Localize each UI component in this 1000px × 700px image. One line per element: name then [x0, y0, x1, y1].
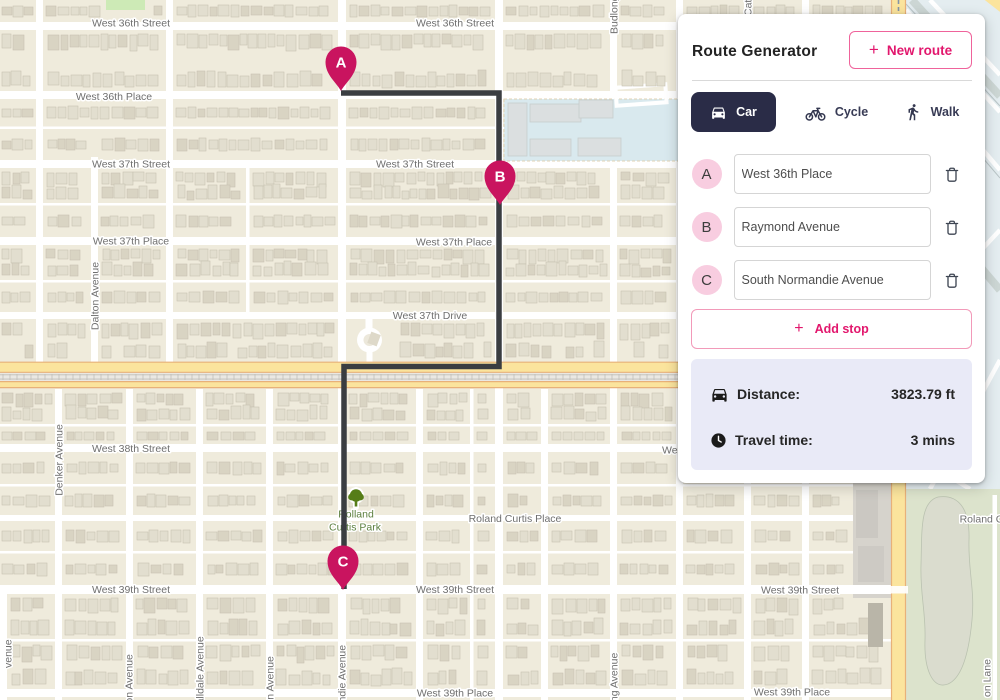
svg-text:on Lane: on Lane: [982, 659, 994, 697]
svg-text:West 37th Place: West 37th Place: [416, 237, 492, 249]
svg-text:Roland Curtis Place: Roland Curtis Place: [469, 513, 562, 525]
svg-text:Roland Curtis Place: Roland Curtis Place: [960, 514, 1000, 526]
svg-text:A: A: [336, 55, 347, 72]
svg-text:B: B: [495, 169, 506, 186]
svg-text:West 36th Place: West 36th Place: [76, 91, 152, 103]
svg-text:West 39th Street: West 39th Street: [92, 584, 170, 596]
svg-text:West 36th Street: West 36th Street: [416, 18, 494, 30]
svg-text:Budlong Avenue: Budlong Avenue: [609, 653, 621, 700]
svg-text:West 38th Street: West 38th Street: [92, 443, 170, 455]
svg-text:West 39th Place: West 39th Place: [754, 687, 830, 699]
svg-text:Brighton Avenue: Brighton Avenue: [124, 654, 136, 700]
svg-text:West 37th Drive: West 37th Drive: [393, 310, 468, 322]
svg-text:West 39th Street: West 39th Street: [416, 584, 494, 596]
svg-text:West 37th Street: West 37th Street: [92, 159, 170, 171]
svg-text:West 39th Street: West 39th Street: [761, 585, 839, 597]
svg-text:Normandie Avenue: Normandie Avenue: [337, 645, 349, 700]
svg-text:Budlong Avenue: Budlong Avenue: [609, 0, 621, 34]
svg-text:venue: venue: [3, 639, 15, 668]
svg-text:Brighton Avenue: Brighton Avenue: [265, 656, 277, 700]
svg-text:C: C: [338, 554, 349, 571]
svg-text:West 37th Place: West 37th Place: [93, 236, 169, 248]
svg-text:West 37th Street: West 37th Street: [376, 159, 454, 171]
svg-text:Halldale Avenue: Halldale Avenue: [195, 636, 207, 700]
svg-text:Dalton Avenue: Dalton Avenue: [90, 262, 102, 330]
svg-text:Curtis Park: Curtis Park: [329, 522, 382, 534]
svg-text:Denker Avenue: Denker Avenue: [54, 424, 66, 496]
svg-text:West 36th Street: West 36th Street: [92, 18, 170, 30]
svg-text:West 39th Place: West 39th Place: [417, 688, 493, 700]
